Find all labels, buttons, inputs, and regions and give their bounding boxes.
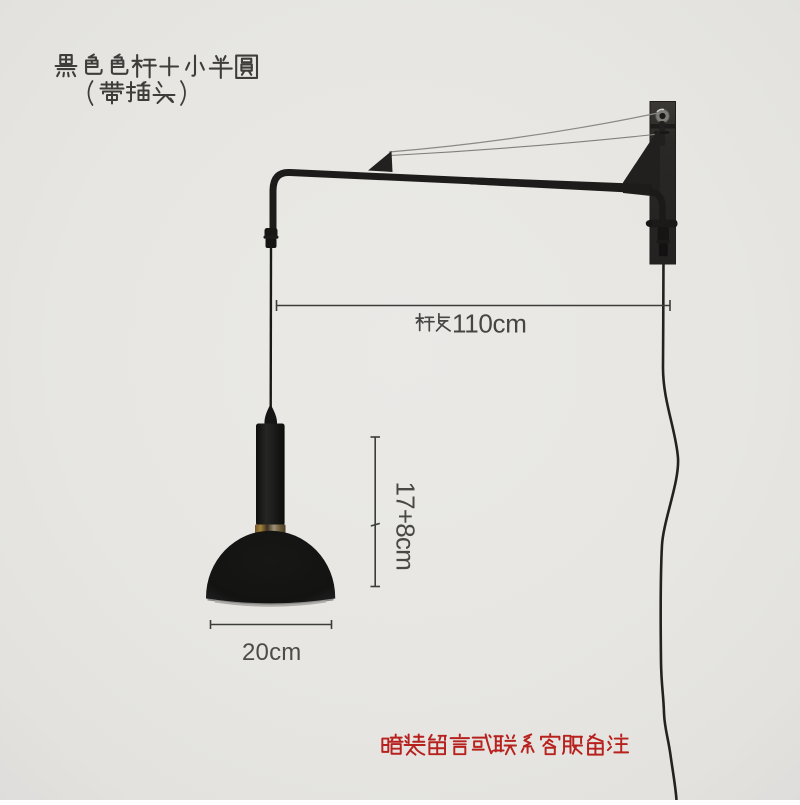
svg-text:17+8cm: 17+8cm (391, 482, 421, 570)
svg-text:110cm: 110cm (452, 309, 527, 339)
svg-text:20cm: 20cm (242, 639, 302, 666)
